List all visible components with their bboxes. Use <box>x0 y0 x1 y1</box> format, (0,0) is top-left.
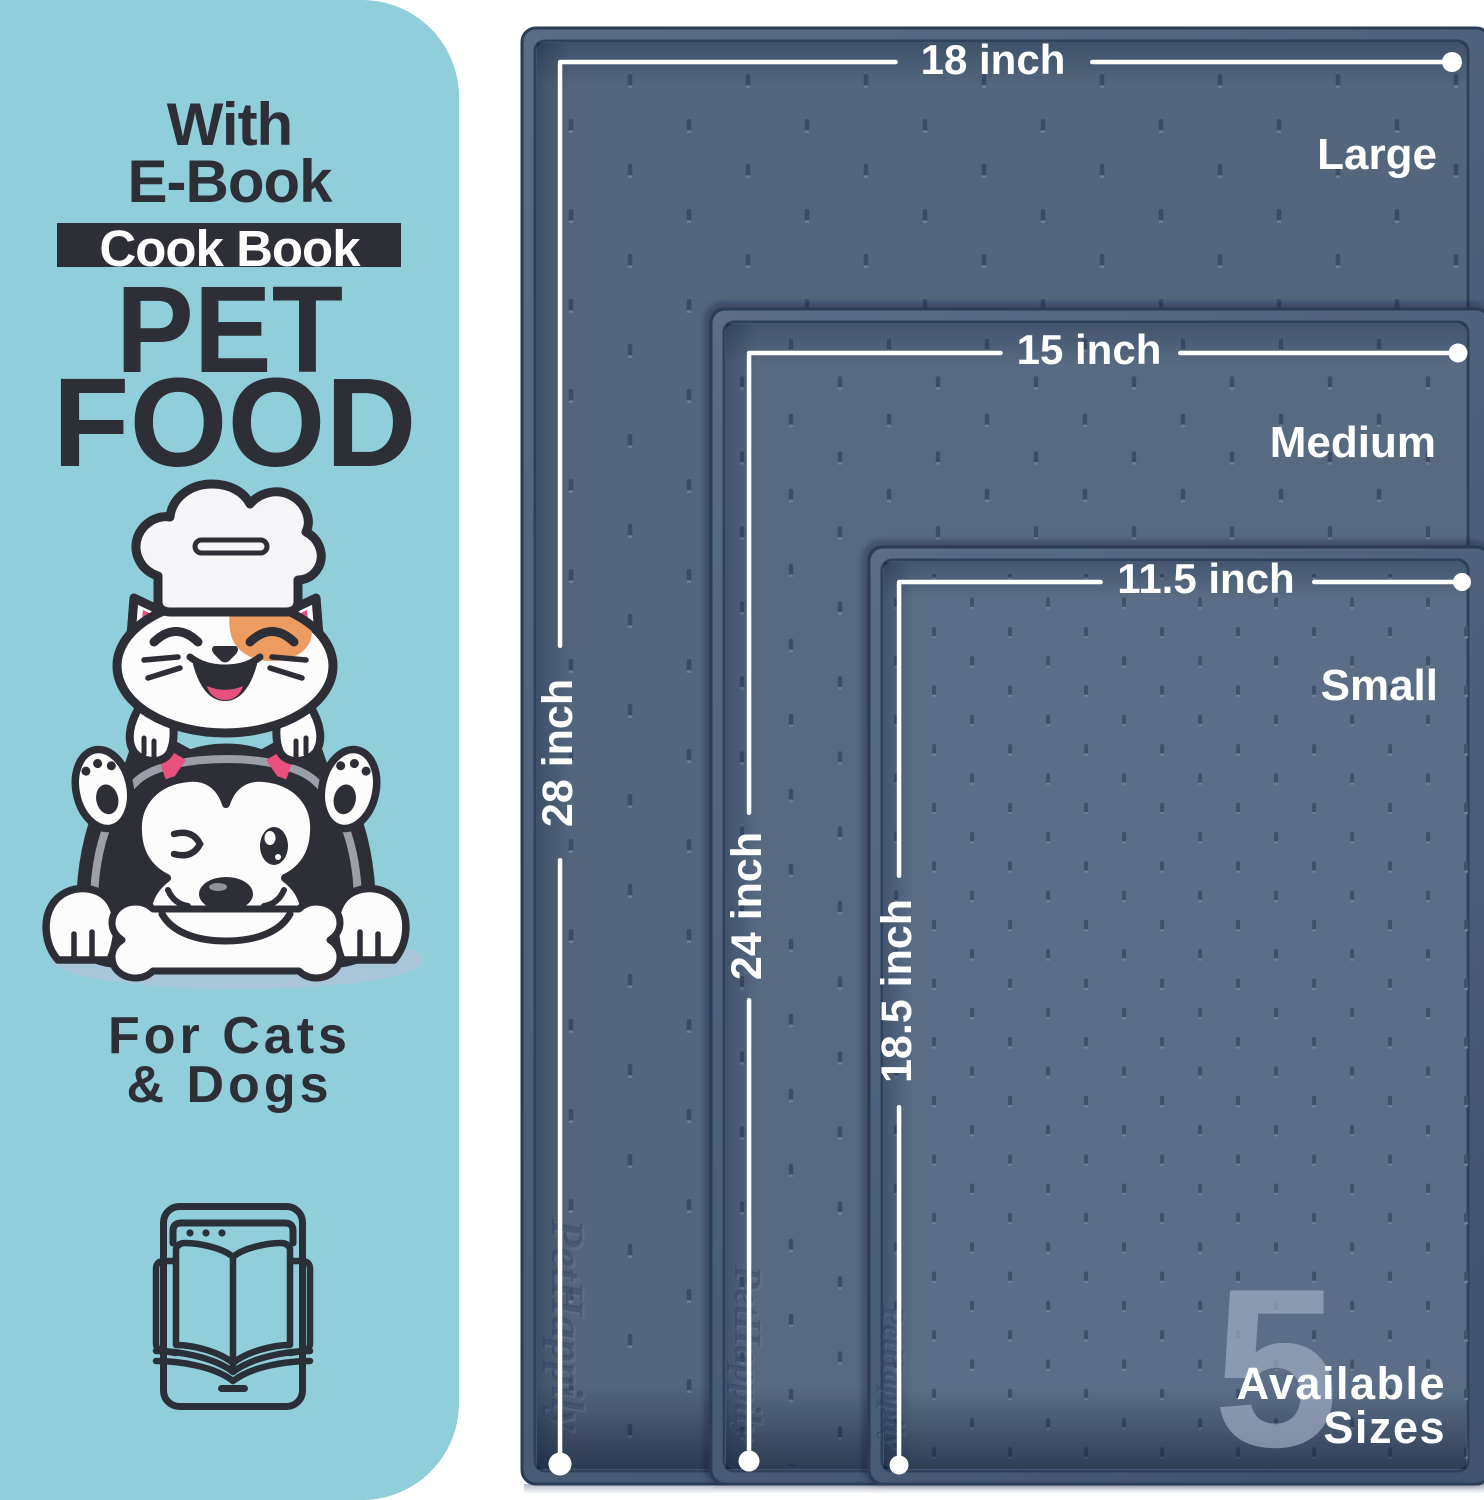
svg-text:18.5 inch: 18.5 inch <box>873 899 921 1083</box>
svg-text:Sizes: Sizes <box>1323 1402 1446 1453</box>
svg-text:Small: Small <box>1321 661 1438 710</box>
svg-text:PetHappily: PetHappily <box>542 1218 593 1432</box>
svg-text:18 inch: 18 inch <box>921 36 1066 83</box>
svg-text:15 inch: 15 inch <box>1017 326 1162 373</box>
svg-text:11.5 inch: 11.5 inch <box>1117 555 1294 602</box>
svg-text:Large: Large <box>1317 130 1437 179</box>
svg-text:28 inch: 28 inch <box>534 679 582 827</box>
svg-text:24 inch: 24 inch <box>723 832 771 980</box>
svg-text:Medium: Medium <box>1270 418 1436 467</box>
svg-text:PetHappily: PetHappily <box>876 1305 911 1449</box>
